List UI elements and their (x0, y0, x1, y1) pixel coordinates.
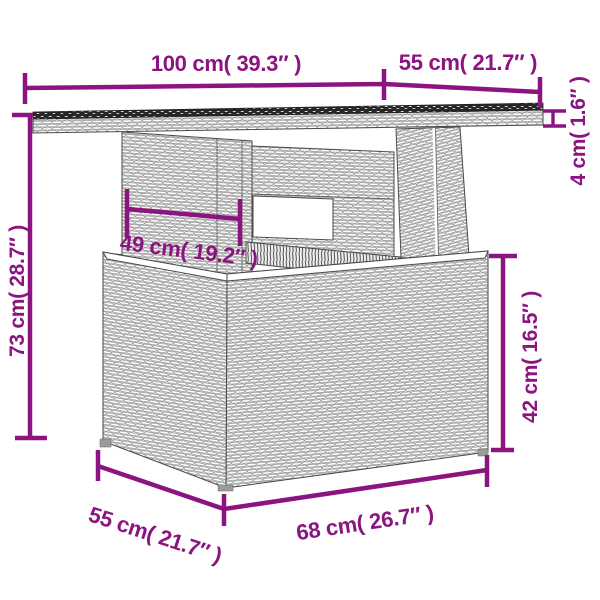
product-dimension-diagram: 100 cm( 39.3″ ) 55 cm( 21.7″ ) 4 cm( 1.6… (0, 0, 600, 600)
dim-label-base-height: 42 cm( 16.5″ ) (519, 291, 542, 423)
dim-label-base-depth: 55 cm( 21.7″ ) (86, 502, 225, 569)
dim-total-height: 73 cm( 28.7″ ) (6, 115, 47, 438)
diagram-canvas: 100 cm( 39.3″ ) 55 cm( 21.7″ ) 4 cm( 1.6… (0, 0, 600, 600)
dim-base-height: 42 cm( 16.5″ ) (489, 256, 542, 450)
dim-top-thickness: 4 cm( 1.6″ ) (543, 76, 590, 185)
base-foot-left (100, 439, 111, 447)
dim-label-top-thickness: 4 cm( 1.6″ ) (567, 76, 590, 185)
base-box-left-face (103, 252, 227, 488)
dim-label-top-width: 100 cm( 39.3″ ) (151, 51, 301, 76)
table-right-leg-panel (396, 127, 469, 258)
base-foot-front (218, 485, 233, 491)
dim-top-width: 100 cm( 39.3″ ) (25, 51, 384, 104)
dim-label-base-width: 68 cm( 26.7″ ) (295, 500, 436, 545)
base-foot-right (478, 449, 488, 456)
back-wall-opening (253, 196, 333, 240)
dim-top-overhang: 55 cm( 21.7″ ) (384, 50, 540, 108)
dim-label-total-height: 73 cm( 28.7″ ) (6, 225, 29, 357)
base-box-right-face (226, 251, 488, 488)
dim-label-top-overhang: 55 cm( 21.7″ ) (399, 50, 537, 75)
furniture-line-art (33, 103, 543, 491)
